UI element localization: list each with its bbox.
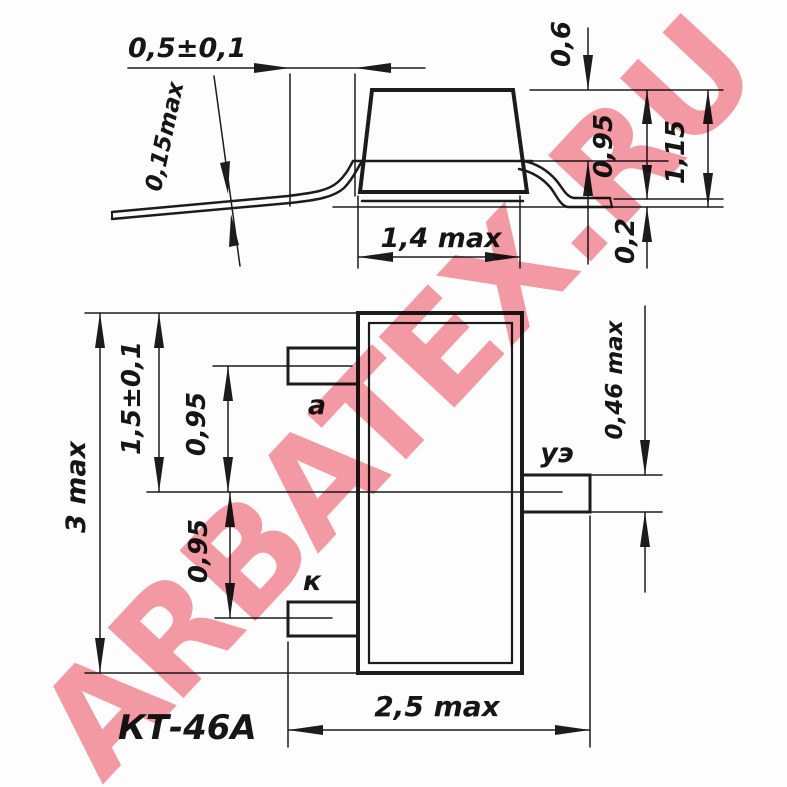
dim-lead-protrusion-label: 0,5±0,1 [128,33,246,64]
drawing-canvas: 0,5±0,1 0,15max 0,6 [0,0,787,787]
dim-top-to-lead-label: 0,6 [547,21,577,67]
gate-lead-label: уэ [540,438,574,469]
dim-lead-thickness: 0,15max [141,76,240,266]
dim-edge-to-gate: 1,5±0,1 [117,313,164,492]
dim-lead-width-label: 0,46 max [602,319,628,439]
dim-edge-to-gate-label: 1,5±0,1 [117,341,147,455]
dim-pitch-upper-label: 0,95 [182,392,212,456]
dim-body-length-label: 3 max [61,439,92,533]
dim-lead-thickness-label: 0,15max [141,78,190,193]
gate-lead [522,475,590,512]
dim-lead-width: 0,46 max [602,306,650,592]
dim-total-width-label: 2,5 max [374,690,500,723]
